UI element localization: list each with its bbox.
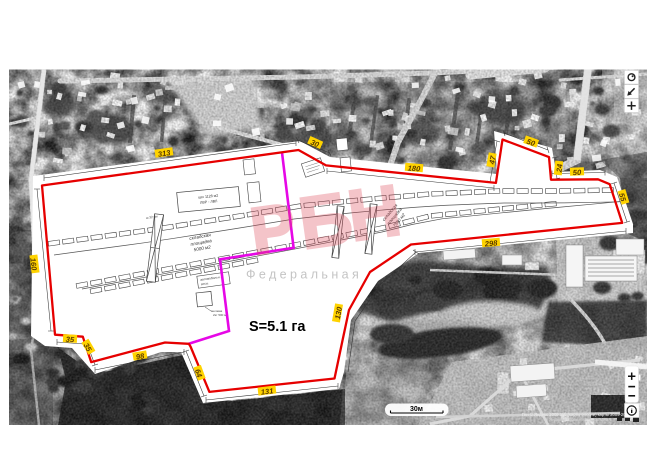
svg-text:30м: 30м: [410, 406, 423, 413]
svg-text:35: 35: [66, 335, 76, 344]
svg-text:Федеральная: Федеральная: [246, 268, 362, 282]
svg-text:50: 50: [573, 168, 582, 177]
svg-text:24: 24: [554, 163, 564, 174]
svg-text:313: 313: [157, 148, 171, 159]
svg-text:S=5.1 га: S=5.1 га: [249, 319, 306, 335]
svg-text:180: 180: [407, 163, 421, 173]
svg-text:298: 298: [483, 238, 498, 248]
svg-text:160: 160: [28, 257, 39, 271]
svg-text:131: 131: [260, 386, 274, 396]
svg-text:Н: Н: [343, 170, 406, 256]
svg-text:© Яндекс условия использования: © Яндекс условия использования: [545, 417, 611, 422]
